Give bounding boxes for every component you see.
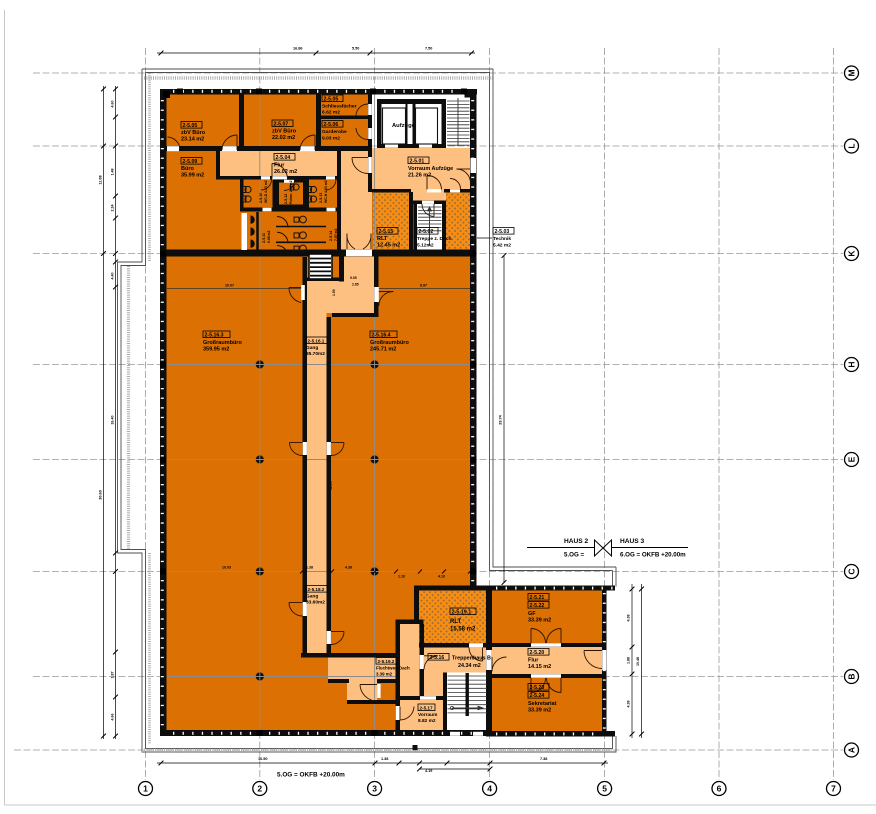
- svg-text:2-5.09: 2-5.09: [183, 159, 198, 165]
- svg-text:4.10: 4.10: [438, 575, 445, 579]
- svg-text:B: B: [847, 673, 857, 679]
- svg-text:2-5.16.1: 2-5.16.1: [308, 338, 325, 343]
- svg-text:RLT: RLT: [450, 619, 462, 625]
- svg-text:4.38: 4.38: [627, 615, 631, 622]
- svg-text:2-5.14: 2-5.14: [329, 231, 333, 241]
- svg-text:15.58 m2: 15.58 m2: [450, 627, 476, 633]
- svg-text:E: E: [847, 456, 857, 462]
- svg-text:2-5.16.3: 2-5.16.3: [205, 332, 224, 338]
- svg-text:16.86: 16.86: [293, 47, 303, 51]
- svg-text:Flur: Flur: [274, 163, 285, 169]
- svg-text:7.67 m2: 7.67 m2: [334, 228, 338, 241]
- svg-text:4.38: 4.38: [345, 566, 352, 570]
- svg-text:5: 5: [602, 784, 607, 794]
- svg-text:7: 7: [831, 784, 836, 794]
- svg-text:359.95 m2: 359.95 m2: [203, 347, 229, 353]
- svg-text:2-5.22: 2-5.22: [530, 603, 545, 609]
- svg-text:9.05: 9.05: [350, 276, 357, 280]
- svg-text:1.38: 1.38: [306, 566, 313, 570]
- svg-text:Sekretariat: Sekretariat: [528, 701, 557, 707]
- svg-text:21.26 m2: 21.26 m2: [408, 173, 431, 179]
- svg-text:10.07: 10.07: [225, 284, 234, 288]
- svg-text:Treppe z. Dach: Treppe z. Dach: [417, 236, 452, 242]
- svg-text:2-5.17: 2-5.17: [420, 705, 433, 710]
- svg-text:2-5.07: 2-5.07: [274, 121, 289, 127]
- svg-text:2-5.12: 2-5.12: [284, 194, 288, 204]
- svg-text:24.34 m2: 24.34 m2: [458, 663, 481, 669]
- svg-text:2-5.19.1: 2-5.19.1: [452, 609, 472, 615]
- svg-text:26.02 m2: 26.02 m2: [274, 169, 297, 175]
- svg-text:6.08 m2: 6.08 m2: [267, 230, 271, 243]
- svg-text:Büro: Büro: [181, 166, 194, 172]
- svg-text:2-5.01: 2-5.01: [410, 158, 425, 164]
- svg-text:2-5.15: 2-5.15: [379, 229, 394, 235]
- svg-text:1: 1: [143, 784, 148, 794]
- svg-text:M: M: [847, 69, 857, 76]
- svg-text:HAUS 2: HAUS 2: [564, 538, 589, 545]
- svg-text:2-5.02: 2-5.02: [419, 229, 434, 235]
- svg-text:Großraumbüro: Großraumbüro: [370, 340, 409, 346]
- svg-text:2-5.19.2: 2-5.19.2: [378, 659, 395, 664]
- svg-text:4.19: 4.19: [425, 769, 432, 773]
- svg-text:2-5.16: 2-5.16: [430, 655, 445, 661]
- svg-text:Technik: Technik: [493, 236, 511, 242]
- svg-text:RLT: RLT: [377, 236, 388, 242]
- svg-text:Flur: Flur: [528, 658, 539, 664]
- svg-text:8.97: 8.97: [420, 284, 427, 288]
- svg-text:35.99 m2: 35.99 m2: [181, 173, 204, 179]
- svg-text:5.50: 5.50: [352, 47, 359, 51]
- svg-text:2-5.10: 2-5.10: [259, 193, 263, 203]
- svg-text:23.14 m2: 23.14 m2: [181, 137, 204, 143]
- svg-text:2.85: 2.85: [352, 283, 359, 287]
- svg-text:1.87: 1.87: [111, 672, 115, 679]
- svg-text:Treppenhaus B: Treppenhaus B: [452, 656, 491, 662]
- svg-text:16.50: 16.50: [258, 757, 268, 761]
- svg-text:WC-H 4.03 m2: WC-H 4.03 m2: [324, 180, 328, 203]
- svg-text:12.45 m2: 12.45 m2: [377, 243, 400, 249]
- svg-text:10.48: 10.48: [636, 657, 640, 666]
- svg-text:2-5.21: 2-5.21: [530, 595, 545, 601]
- svg-text:4.40: 4.40: [111, 273, 115, 280]
- svg-text:11.08: 11.08: [99, 175, 103, 184]
- svg-text:Vorraum: Vorraum: [418, 712, 437, 718]
- svg-text:6: 6: [717, 784, 722, 794]
- svg-text:33.39 m2: 33.39 m2: [528, 618, 551, 624]
- svg-text:Fluchtweg Dach: Fluchtweg Dach: [376, 666, 410, 671]
- svg-text:26.40: 26.40: [111, 416, 115, 425]
- svg-text:2-5.16.4: 2-5.16.4: [372, 332, 391, 338]
- svg-text:1.88: 1.88: [627, 657, 631, 664]
- svg-text:1.10: 1.10: [398, 575, 405, 579]
- svg-text:245.71 m2: 245.71 m2: [370, 347, 396, 353]
- svg-text:Vorraum Aufzüge: Vorraum Aufzüge: [408, 166, 453, 172]
- svg-text:K: K: [847, 250, 857, 257]
- svg-text:Großraumbüro: Großraumbüro: [203, 340, 242, 346]
- svg-text:4: 4: [487, 784, 492, 794]
- svg-text:zbV Büro: zbV Büro: [272, 129, 297, 135]
- svg-text:33.60m2: 33.60m2: [306, 600, 325, 606]
- svg-text:8.82 m2: 8.82 m2: [418, 718, 436, 724]
- svg-text:GF: GF: [528, 611, 536, 617]
- svg-text:35.70m2: 35.70m2: [306, 351, 325, 357]
- svg-text:2-5.11: 2-5.11: [262, 233, 266, 243]
- svg-text:H: H: [847, 361, 857, 367]
- svg-text:2-5.06: 2-5.06: [324, 122, 339, 128]
- svg-text:1.50: 1.50: [332, 289, 336, 296]
- svg-text:A: A: [847, 747, 857, 753]
- svg-text:C: C: [847, 568, 857, 574]
- svg-text:2-5.23: 2-5.23: [530, 685, 545, 691]
- svg-text:3: 3: [372, 784, 377, 794]
- svg-text:2-5.13: 2-5.13: [319, 193, 323, 203]
- svg-text:2-5.18.2: 2-5.18.2: [308, 587, 325, 592]
- svg-text:4.38: 4.38: [627, 701, 631, 708]
- svg-text:4.60: 4.60: [111, 101, 115, 108]
- svg-text:Schliessfächer: Schliessfächer: [322, 104, 357, 110]
- svg-text:Garderobe: Garderobe: [322, 129, 347, 135]
- svg-text:Aufzüge: Aufzüge: [392, 123, 416, 129]
- svg-text:2-5.20: 2-5.20: [530, 650, 545, 656]
- svg-text:6.OG = OKFB +20.00m: 6.OG = OKFB +20.00m: [620, 552, 686, 559]
- svg-text:2-5.04: 2-5.04: [276, 155, 291, 161]
- svg-text:2.24: 2.24: [111, 205, 115, 212]
- svg-text:2-5.05: 2-5.05: [183, 123, 198, 129]
- svg-text:10.03: 10.03: [222, 566, 231, 570]
- svg-text:4.66: 4.66: [111, 714, 115, 721]
- svg-text:22.02 m2: 22.02 m2: [272, 135, 295, 141]
- svg-text:2: 2: [257, 784, 262, 794]
- svg-text:5.OG =: 5.OG =: [564, 552, 585, 559]
- svg-text:7.38: 7.38: [540, 757, 547, 761]
- svg-text:2-5.03: 2-5.03: [495, 229, 510, 235]
- svg-text:7.50: 7.50: [425, 47, 432, 51]
- svg-text:2-5.24: 2-5.24: [530, 693, 545, 699]
- svg-text:1.38: 1.38: [381, 757, 388, 761]
- svg-text:Gang: Gang: [306, 345, 318, 351]
- svg-text:zbV Büro: zbV Büro: [181, 130, 206, 136]
- svg-text:5.42 m2: 5.42 m2: [493, 243, 511, 249]
- svg-text:3.39 m2: 3.39 m2: [376, 672, 393, 677]
- svg-text:2-5.05: 2-5.05: [324, 96, 339, 102]
- svg-text:1.48: 1.48: [111, 169, 115, 176]
- svg-text:Putzm. 2.07m2: Putzm. 2.07m2: [289, 180, 293, 204]
- svg-text:29.74: 29.74: [499, 414, 503, 424]
- svg-text:5.OG = OKFB +20.00m: 5.OG = OKFB +20.00m: [277, 772, 345, 779]
- svg-text:9.03 m2: 9.03 m2: [322, 136, 340, 142]
- svg-text:L: L: [847, 143, 857, 148]
- svg-text:30.60: 30.60: [99, 490, 103, 500]
- svg-text:WC-D 4.03 m2: WC-D 4.03 m2: [264, 180, 268, 203]
- svg-text:5.12m2: 5.12m2: [417, 243, 434, 249]
- svg-text:6.62 m2: 6.62 m2: [322, 110, 340, 116]
- svg-text:HAUS 3: HAUS 3: [620, 538, 645, 545]
- svg-text:33.39 m2: 33.39 m2: [528, 708, 551, 714]
- svg-text:14.15 m2: 14.15 m2: [528, 664, 551, 670]
- svg-text:Gang: Gang: [306, 594, 318, 600]
